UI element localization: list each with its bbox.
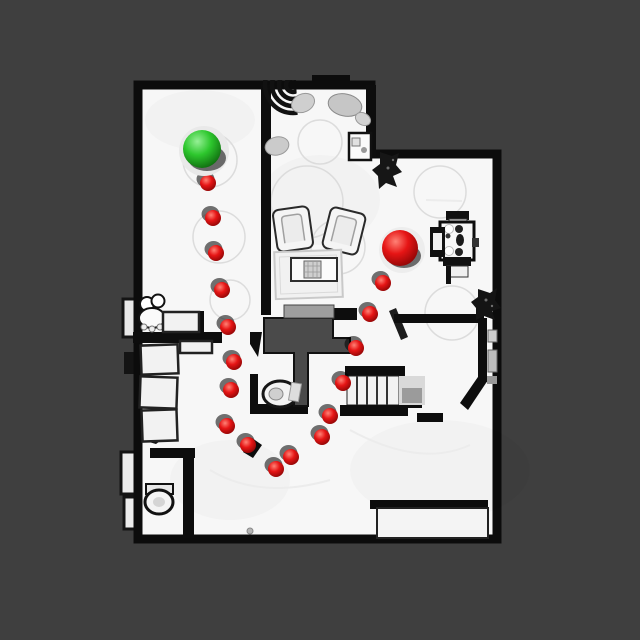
bathroom-sink: [139, 295, 165, 333]
start-sphere: [183, 130, 221, 168]
waypoint-dot: [223, 382, 239, 398]
floor-map: [0, 0, 640, 640]
armchair-left: [272, 206, 313, 253]
waypoint-dot: [375, 275, 391, 291]
low-bench: [284, 305, 334, 318]
floor-pebble: [247, 528, 253, 534]
floor-map-stage: [0, 0, 640, 640]
waypoint-dot: [214, 282, 230, 298]
side-table: [349, 133, 371, 160]
waypoint-dot: [240, 437, 256, 453]
waypoint-dot: [348, 340, 364, 356]
waypoint-dot: [283, 449, 299, 465]
waypoint-dot: [335, 375, 351, 391]
waypoint-dot: [322, 408, 338, 424]
goal-sphere: [382, 230, 418, 266]
waypoint-dot: [205, 210, 221, 226]
waypoint-dot: [314, 429, 330, 445]
waypoint-dot: [226, 354, 242, 370]
window-bench: [370, 500, 488, 538]
waypoint-dot: [200, 175, 216, 191]
waypoint-dot: [268, 461, 284, 477]
waypoint-dot: [208, 245, 224, 261]
waypoint-dot: [362, 306, 378, 322]
waypoint-dot: [219, 418, 235, 434]
waypoint-dot: [220, 319, 236, 335]
coffee-table: [291, 258, 337, 281]
